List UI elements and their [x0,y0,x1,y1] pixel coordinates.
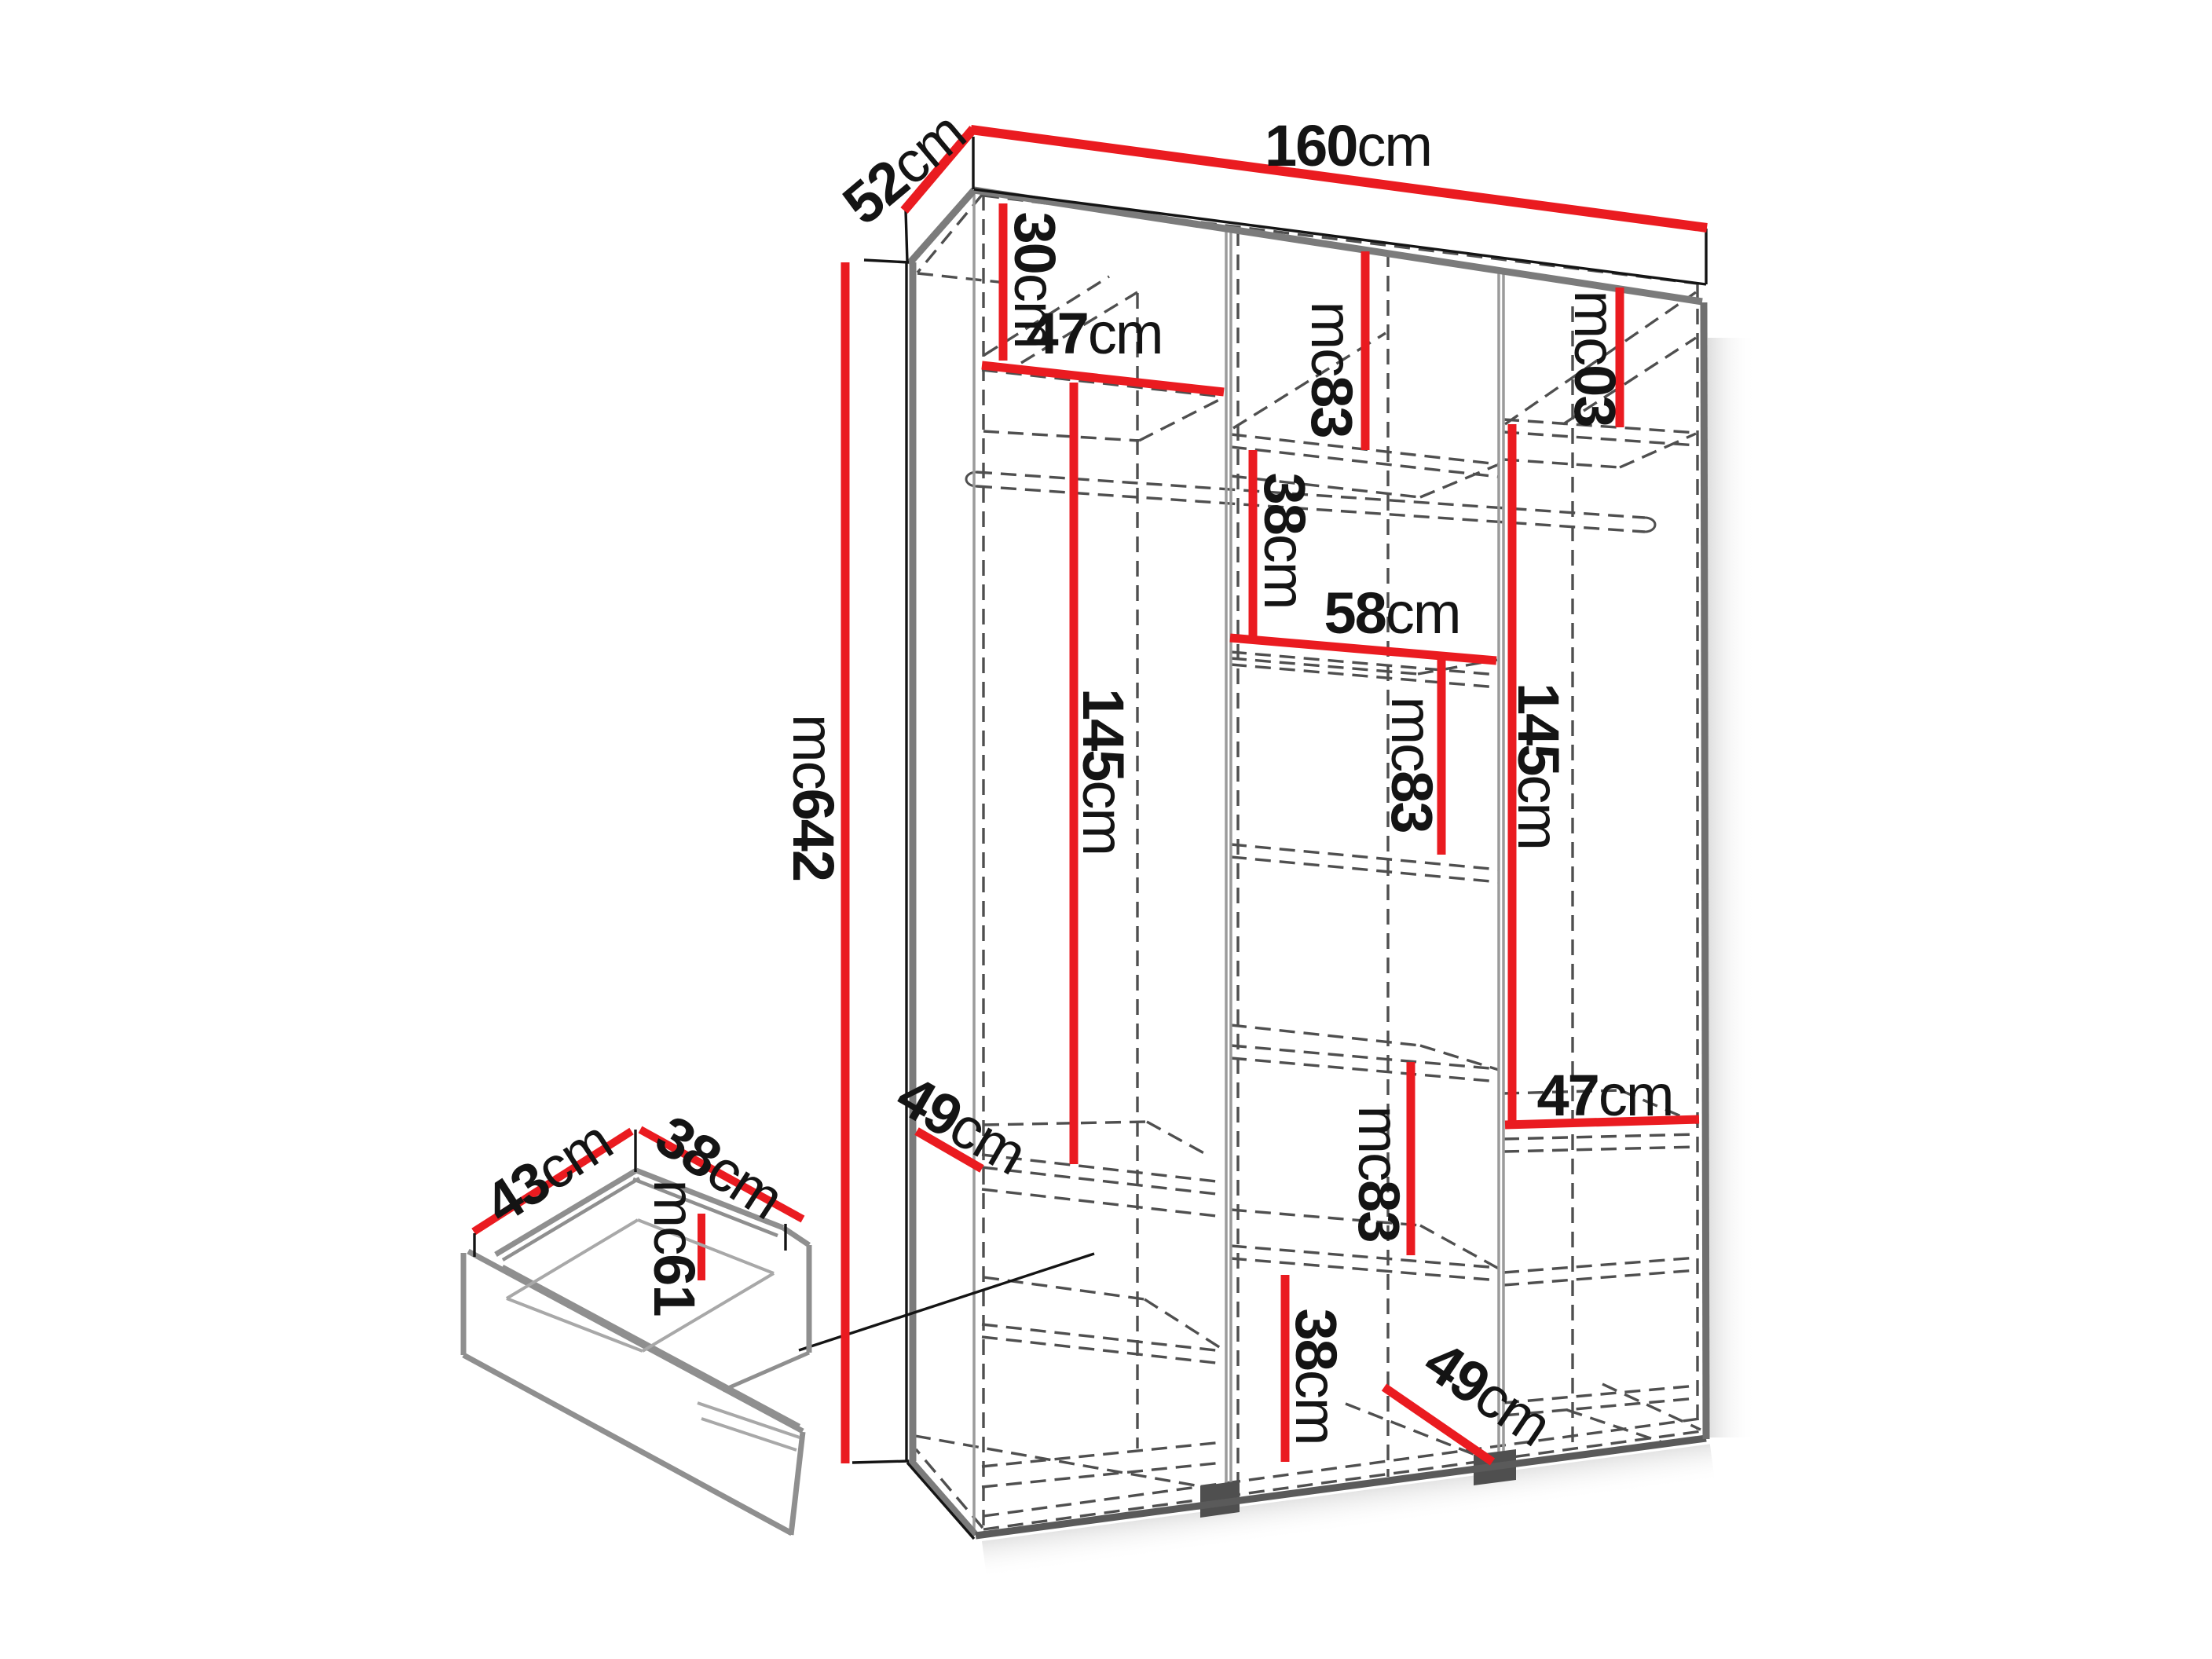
svg-text:38cm: 38cm [1253,473,1318,609]
svg-text:mc83: mc83 [1300,302,1365,438]
svg-text:mc642: mc642 [782,714,847,881]
svg-text:58cm: 58cm [1324,580,1460,646]
svg-text:145cm: 145cm [1071,688,1137,855]
svg-text:mc83: mc83 [1347,1106,1412,1242]
svg-text:145cm: 145cm [1507,683,1572,849]
svg-text:38cm: 38cm [1284,1309,1350,1445]
svg-text:mc61: mc61 [643,1180,708,1317]
svg-text:47cm: 47cm [1537,1063,1673,1128]
svg-text:mc03: mc03 [1563,291,1628,427]
svg-text:160cm: 160cm [1265,113,1431,178]
svg-text:mc83: mc83 [1380,697,1445,833]
svg-text:47cm: 47cm [1027,301,1163,366]
